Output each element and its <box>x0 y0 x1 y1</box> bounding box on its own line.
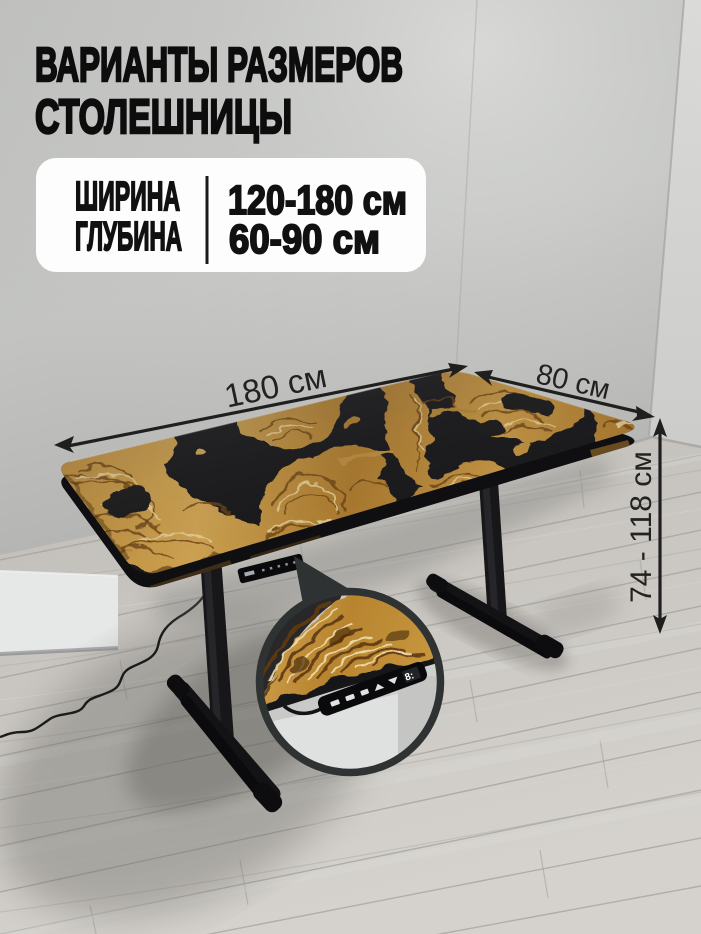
svg-text:СТОЛЕШНИЦЫ: СТОЛЕШНИЦЫ <box>35 91 292 144</box>
svg-text:ВАРИАНТЫ РАЗМЕРОВ: ВАРИАНТЫ РАЗМЕРОВ <box>35 39 403 92</box>
svg-text:74 - 118 см: 74 - 118 см <box>625 451 658 603</box>
svg-text:60-90 см: 60-90 см <box>229 216 380 262</box>
svg-text:ГЛУБИНА: ГЛУБИНА <box>75 213 182 259</box>
